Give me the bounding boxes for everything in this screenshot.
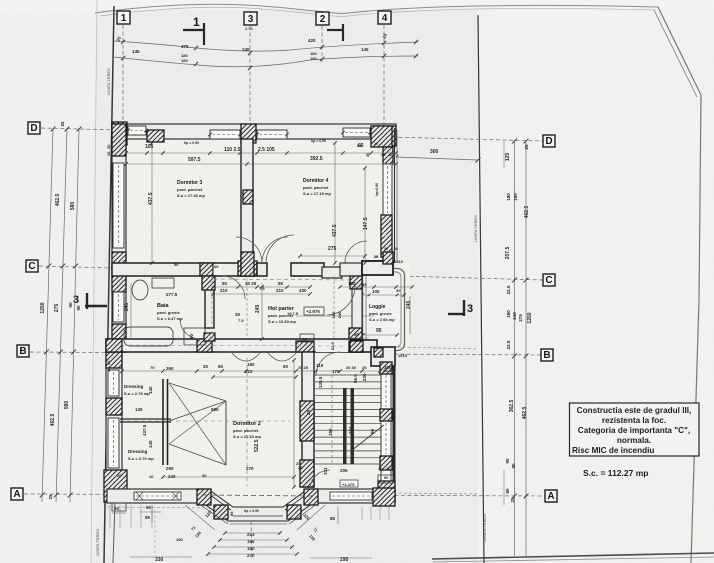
svg-text:90: 90	[278, 281, 284, 286]
svg-text:Loggie: Loggie	[369, 304, 386, 310]
svg-text:16: 16	[106, 367, 111, 372]
svg-text:95.5: 95.5	[353, 374, 358, 383]
svg-text:8.95: 8.95	[245, 26, 254, 31]
svg-text:1250: 1250	[40, 302, 46, 313]
svg-text:110: 110	[316, 363, 324, 368]
svg-text:135.5: 135.5	[318, 376, 323, 388]
svg-text:10: 10	[149, 474, 154, 479]
svg-text:normala.: normala.	[617, 436, 651, 445]
svg-text:Dormitor 4: Dormitor 4	[303, 178, 329, 184]
svg-text:580: 580	[70, 202, 76, 211]
svg-text:Dressing: Dressing	[128, 449, 148, 454]
svg-text:70: 70	[150, 365, 155, 370]
svg-text:462.5: 462.5	[55, 194, 61, 207]
svg-text:300: 300	[430, 149, 439, 155]
svg-text:275: 275	[518, 314, 523, 322]
svg-text:240: 240	[337, 311, 342, 318]
svg-text:10: 10	[386, 466, 391, 471]
svg-text:S.u = 10.53 mp: S.u = 10.53 mp	[268, 319, 296, 324]
svg-text:hp = 0.90: hp = 0.90	[311, 139, 326, 143]
svg-text:20: 20	[374, 255, 378, 259]
svg-text:25: 25	[362, 282, 367, 287]
svg-text:145: 145	[361, 47, 369, 52]
svg-text:230: 230	[362, 373, 367, 381]
svg-text:522.5: 522.5	[254, 439, 260, 452]
svg-text:LIMITA TEREN: LIMITA TEREN	[482, 514, 487, 541]
svg-text:S.u = 17.15 mp: S.u = 17.15 mp	[303, 191, 331, 196]
svg-text:1250: 1250	[527, 312, 533, 323]
svg-text:4: 4	[382, 13, 388, 24]
svg-text:19 7.5: 19 7.5	[287, 311, 299, 316]
svg-text:437.5: 437.5	[142, 424, 147, 436]
svg-text:180: 180	[506, 193, 511, 201]
svg-text:3: 3	[73, 294, 79, 306]
svg-text:30: 30	[389, 152, 394, 157]
svg-text:7.5: 7.5	[238, 318, 244, 323]
svg-text:205: 205	[340, 468, 348, 473]
svg-text:+1.475: +1.475	[342, 482, 355, 487]
svg-text:50: 50	[302, 337, 308, 342]
svg-text:pard. parchet: pard. parchet	[303, 185, 329, 190]
svg-text:30: 30	[394, 247, 398, 251]
svg-text:hp=0.90: hp=0.90	[375, 183, 379, 196]
svg-text:275: 275	[54, 304, 60, 313]
svg-text:392.5: 392.5	[310, 156, 323, 162]
svg-text:30: 30	[381, 152, 386, 157]
svg-text:45: 45	[366, 153, 370, 157]
svg-text:60: 60	[214, 264, 219, 269]
svg-text:30: 30	[383, 232, 387, 236]
svg-text:S.u = 2.70 mp: S.u = 2.70 mp	[128, 456, 154, 461]
svg-text:180: 180	[506, 310, 511, 318]
svg-text:30: 30	[203, 364, 209, 369]
svg-text:LIMITA TEREN: LIMITA TEREN	[106, 68, 111, 95]
svg-text:Risc MIC de incendiu: Risc MIC de incendiu	[572, 446, 654, 455]
svg-text:1515: 1515	[398, 353, 408, 358]
svg-text:25: 25	[296, 461, 301, 466]
svg-text:240: 240	[512, 312, 517, 320]
svg-text:Categoria de importanta "C",: Categoria de importanta "C",	[578, 426, 690, 435]
svg-text:437.5: 437.5	[332, 224, 338, 237]
svg-text:245: 245	[406, 300, 412, 309]
svg-text:30: 30	[106, 144, 111, 149]
svg-text:rezistenta la foc.: rezistenta la foc.	[602, 416, 666, 425]
svg-text:90: 90	[222, 281, 228, 286]
svg-text:30: 30	[389, 368, 394, 373]
svg-text:330: 330	[155, 557, 164, 563]
svg-text:S.u = 2.79 mp: S.u = 2.79 mp	[124, 391, 150, 396]
svg-text:475: 475	[181, 44, 189, 49]
svg-text:90: 90	[189, 333, 194, 339]
svg-text:3: 3	[248, 14, 254, 25]
svg-text:pard. parchet: pard. parchet	[177, 187, 203, 192]
svg-text:Constructia este de gradul III: Constructia este de gradul III,	[577, 406, 692, 415]
svg-text:50: 50	[146, 505, 152, 510]
svg-text:+2.975: +2.975	[306, 309, 320, 314]
svg-text:22.5: 22.5	[506, 340, 511, 349]
svg-text:S.u = 2.94 mp: S.u = 2.94 mp	[369, 317, 395, 322]
svg-text:224: 224	[348, 426, 353, 434]
svg-text:25: 25	[60, 121, 65, 127]
svg-text:90: 90	[505, 458, 510, 464]
svg-text:147.5: 147.5	[363, 217, 369, 230]
svg-text:30: 30	[378, 466, 383, 471]
svg-text:pard. gresie: pard. gresie	[157, 310, 180, 315]
svg-text:145: 145	[132, 49, 140, 54]
svg-text:pard. gresie: pard. gresie	[369, 311, 392, 316]
svg-text:60: 60	[218, 364, 224, 369]
svg-text:Dressing: Dressing	[124, 384, 144, 389]
svg-text:110 2.5: 110 2.5	[224, 147, 241, 153]
svg-text:430: 430	[299, 288, 307, 293]
svg-text:245: 245	[255, 304, 261, 313]
svg-text:3: 3	[467, 303, 473, 315]
svg-text:50: 50	[174, 262, 179, 267]
svg-text:210: 210	[276, 288, 284, 293]
svg-text:105: 105	[145, 144, 154, 150]
svg-text:30 25: 30 25	[245, 281, 257, 286]
svg-text:30: 30	[384, 247, 388, 251]
svg-text:62.5: 62.5	[330, 341, 335, 350]
svg-text:90: 90	[68, 302, 73, 308]
svg-text:150: 150	[513, 193, 518, 201]
svg-text:LIMITA TEREN: LIMITA TEREN	[473, 215, 478, 242]
svg-text:85: 85	[229, 511, 234, 516]
svg-text:105: 105	[372, 289, 380, 294]
svg-text:25 25: 25 25	[298, 365, 309, 370]
svg-text:50: 50	[384, 475, 389, 480]
svg-text:180: 180	[348, 281, 356, 286]
svg-text:210: 210	[245, 369, 253, 374]
svg-text:22.5: 22.5	[506, 285, 511, 294]
svg-text:15: 15	[106, 151, 111, 156]
svg-text:260: 260	[166, 366, 174, 371]
svg-text:245: 245	[242, 47, 250, 52]
svg-text:C: C	[545, 275, 552, 286]
svg-text:207.5: 207.5	[505, 247, 511, 260]
svg-text:175: 175	[332, 369, 340, 374]
svg-text:hp = 0.90: hp = 0.90	[244, 509, 259, 513]
svg-text:20 30: 20 30	[346, 365, 357, 370]
svg-text:Dormitor 3: Dormitor 3	[177, 180, 203, 186]
svg-text:S.u = 17.36 mp: S.u = 17.36 mp	[177, 193, 205, 198]
svg-text:90: 90	[370, 428, 375, 434]
svg-text:hp = 0.90: hp = 0.90	[184, 141, 199, 145]
svg-text:30: 30	[202, 473, 207, 478]
svg-text:80: 80	[505, 488, 510, 494]
svg-text:210: 210	[220, 288, 228, 293]
svg-text:462.5: 462.5	[50, 414, 56, 427]
svg-text:25: 25	[362, 365, 367, 370]
svg-text:85: 85	[330, 516, 336, 521]
svg-text:150: 150	[310, 56, 317, 61]
svg-text:290: 290	[166, 466, 174, 471]
svg-text:2.5 105: 2.5 105	[258, 147, 275, 153]
svg-text:362.5: 362.5	[509, 400, 515, 413]
svg-text:Dormitor 2: Dormitor 2	[233, 421, 261, 427]
svg-text:25: 25	[524, 144, 529, 150]
svg-text:50: 50	[354, 332, 360, 337]
svg-text:462.5: 462.5	[522, 407, 528, 420]
svg-text:437.5: 437.5	[148, 192, 154, 205]
svg-text:190: 190	[328, 428, 333, 436]
svg-text:140: 140	[148, 386, 153, 394]
svg-text:597.5: 597.5	[188, 157, 201, 163]
svg-text:20: 20	[117, 473, 122, 478]
svg-text:462.5: 462.5	[524, 206, 530, 219]
svg-text:A: A	[547, 491, 554, 502]
svg-text:270: 270	[246, 466, 254, 471]
svg-text:Baia: Baia	[157, 303, 170, 309]
svg-text:B: B	[543, 350, 550, 361]
svg-text:20: 20	[374, 142, 378, 146]
svg-text:25: 25	[306, 409, 311, 415]
svg-text:580: 580	[64, 401, 70, 410]
svg-text:585: 585	[211, 407, 219, 412]
svg-text:90: 90	[76, 305, 81, 311]
svg-text:7.5: 7.5	[259, 286, 265, 291]
svg-text:S.c. = 112.27 mp: S.c. = 112.27 mp	[583, 468, 648, 478]
svg-text:A: A	[13, 489, 20, 500]
svg-text:S.u = 21.53 mp: S.u = 21.53 mp	[233, 434, 261, 439]
svg-text:D: D	[30, 123, 37, 134]
svg-text:30: 30	[235, 312, 241, 317]
svg-text:101: 101	[323, 467, 328, 475]
svg-text:60: 60	[283, 364, 289, 369]
svg-text:C: C	[28, 261, 35, 272]
svg-text:65: 65	[358, 143, 364, 149]
svg-text:275: 275	[328, 246, 337, 252]
svg-text:85: 85	[145, 515, 151, 520]
svg-text:245: 245	[124, 302, 130, 311]
svg-text:1515: 1515	[394, 259, 404, 264]
svg-text:25: 25	[510, 497, 515, 503]
svg-text:S.u = 6.47 mp: S.u = 6.47 mp	[157, 316, 183, 321]
svg-text:190: 190	[176, 537, 183, 542]
svg-text:140: 140	[148, 440, 153, 448]
svg-text:150: 150	[247, 362, 255, 367]
svg-text:30: 30	[396, 288, 401, 293]
svg-text:1: 1	[121, 13, 127, 24]
svg-text:125: 125	[505, 153, 511, 162]
svg-text:95: 95	[376, 328, 382, 334]
svg-text:B: B	[19, 346, 26, 357]
svg-text:277.5: 277.5	[166, 292, 178, 297]
svg-text:pard. parchet: pard. parchet	[233, 428, 259, 433]
svg-text:2: 2	[320, 14, 326, 25]
svg-text:150: 150	[181, 58, 188, 63]
svg-text:130: 130	[135, 407, 143, 412]
svg-text:180: 180	[331, 311, 336, 318]
svg-text:1: 1	[193, 15, 200, 29]
svg-text:90: 90	[511, 463, 516, 469]
svg-text:D: D	[545, 136, 552, 147]
svg-text:LIMITA TEREN: LIMITA TEREN	[95, 529, 100, 556]
svg-text:30: 30	[383, 368, 388, 373]
svg-text:420: 420	[308, 38, 316, 43]
svg-text:240: 240	[168, 474, 176, 479]
svg-text:30: 30	[106, 360, 111, 365]
svg-text:25: 25	[48, 494, 53, 500]
